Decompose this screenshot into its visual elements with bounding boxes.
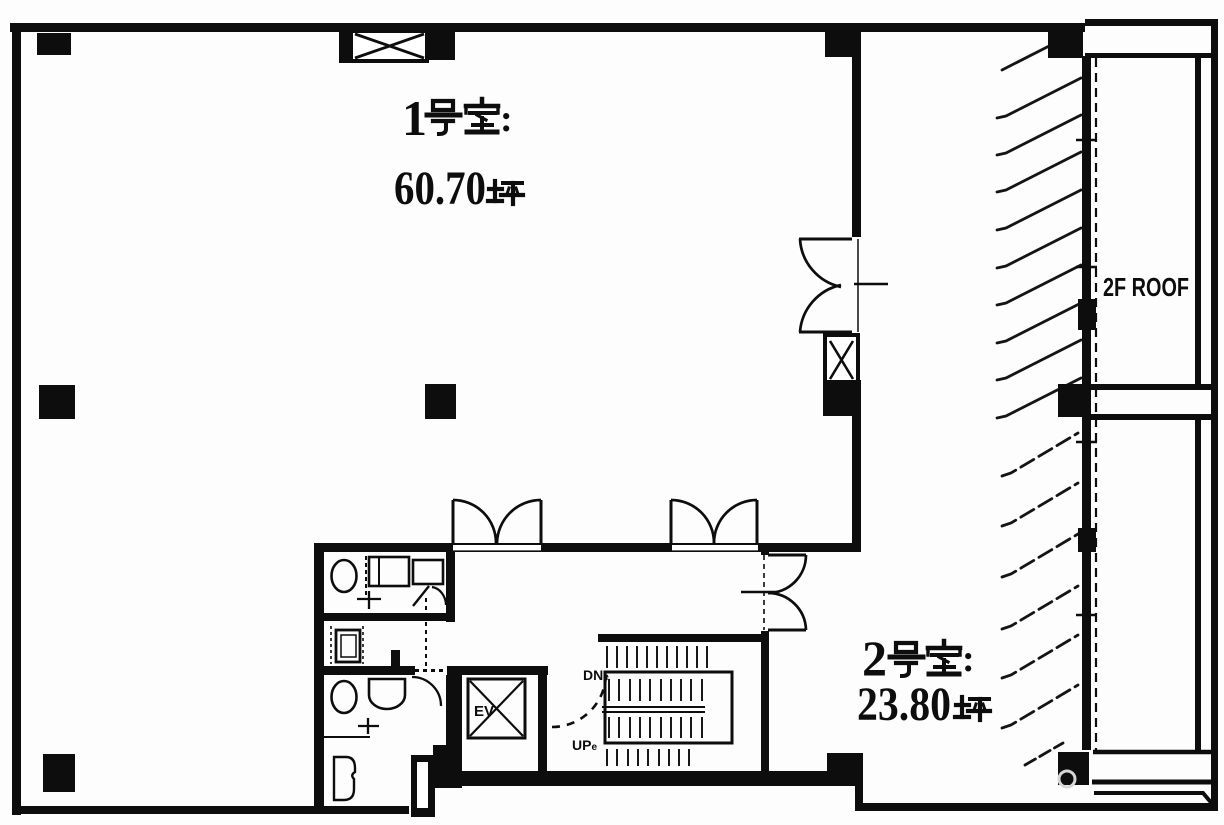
- svg-text::: :: [500, 98, 513, 140]
- svg-text::: :: [962, 638, 975, 680]
- svg-text:23.80: 23.80: [857, 678, 951, 731]
- svg-text:1: 1: [402, 90, 427, 146]
- svg-text:2F ROOF: 2F ROOF: [1103, 272, 1189, 302]
- svg-text:EV: EV: [474, 703, 494, 720]
- svg-text:60.70: 60.70: [394, 162, 486, 215]
